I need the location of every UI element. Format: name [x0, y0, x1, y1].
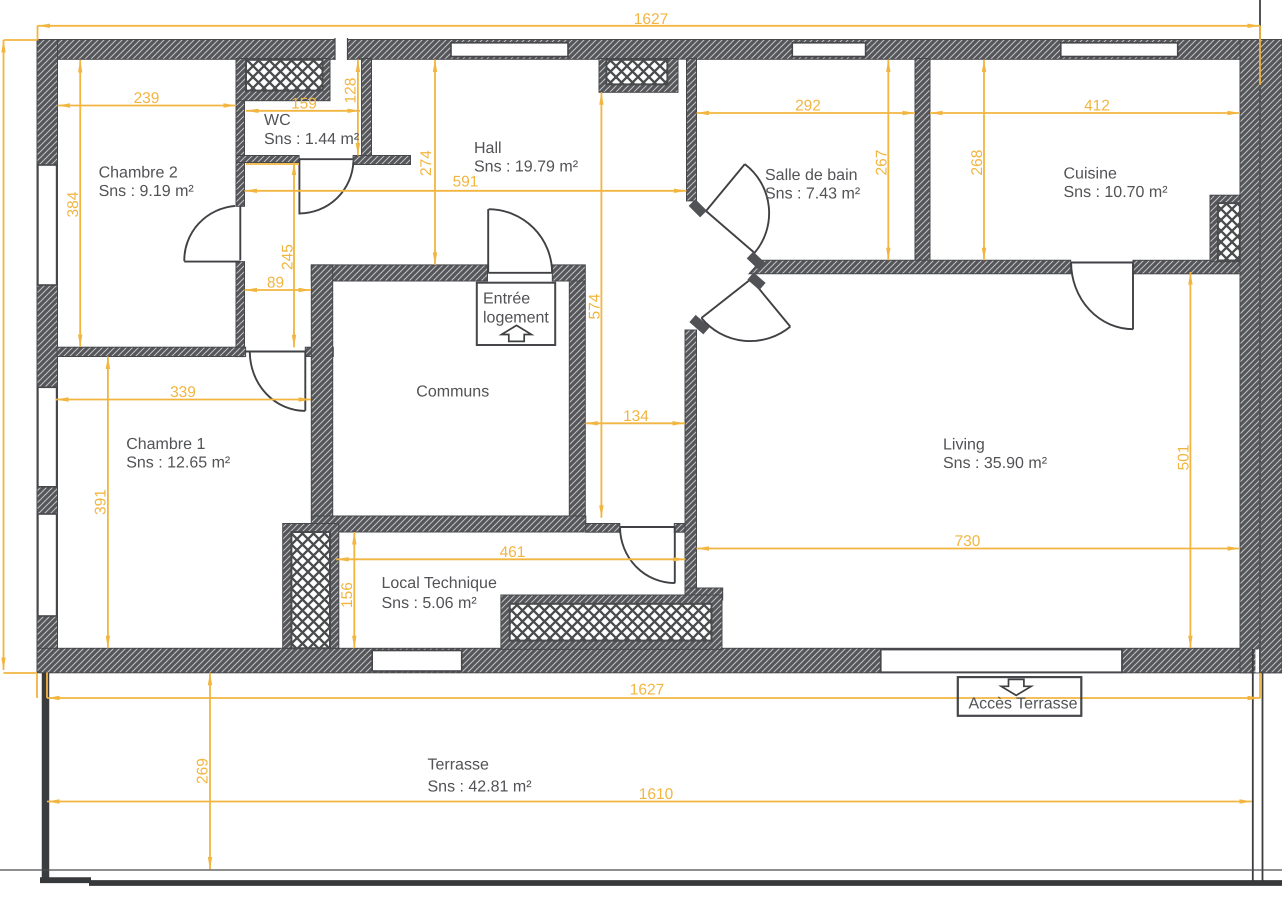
svg-text:1627: 1627 [630, 682, 664, 699]
svg-text:Cuisine: Cuisine [1064, 166, 1117, 183]
svg-text:Sns : 12.65 m²: Sns : 12.65 m² [126, 455, 231, 472]
svg-text:292: 292 [795, 98, 821, 115]
svg-text:156: 156 [339, 582, 356, 608]
svg-text:Sns : 9.19 m²: Sns : 9.19 m² [99, 183, 195, 200]
svg-text:591: 591 [453, 174, 479, 191]
svg-text:274: 274 [418, 150, 435, 176]
svg-text:Living: Living [943, 437, 985, 454]
svg-text:268: 268 [969, 150, 986, 176]
svg-text:267: 267 [874, 150, 891, 176]
svg-text:Sns : 19.79 m²: Sns : 19.79 m² [474, 159, 579, 176]
svg-text:461: 461 [500, 544, 526, 561]
svg-text:501: 501 [1176, 445, 1193, 471]
svg-text:128: 128 [343, 78, 360, 104]
svg-text:Sns : 1.44 m²: Sns : 1.44 m² [264, 131, 360, 148]
svg-text:Sns : 10.70 m²: Sns : 10.70 m² [1064, 184, 1169, 201]
svg-text:Chambre 2: Chambre 2 [99, 165, 178, 182]
svg-text:1610: 1610 [639, 786, 674, 803]
svg-text:Local Technique: Local Technique [382, 575, 497, 592]
svg-text:384: 384 [65, 191, 82, 217]
svg-text:Entrée: Entrée [483, 291, 530, 308]
svg-text:339: 339 [170, 384, 196, 401]
svg-text:391: 391 [93, 489, 110, 515]
svg-text:Salle de bain: Salle de bain [765, 167, 858, 184]
svg-text:1627: 1627 [634, 11, 668, 28]
svg-text:Communs: Communs [416, 384, 489, 401]
svg-text:Sns : 35.90 m²: Sns : 35.90 m² [943, 455, 1048, 472]
svg-text:730: 730 [955, 533, 981, 550]
svg-text:Chambre 1: Chambre 1 [126, 436, 205, 453]
svg-text:245: 245 [280, 244, 297, 270]
svg-text:89: 89 [267, 275, 284, 292]
svg-text:Sns : 42.81 m²: Sns : 42.81 m² [428, 779, 533, 796]
svg-text:Sns : 5.06 m²: Sns : 5.06 m² [382, 595, 478, 612]
svg-text:Accès Terrasse: Accès Terrasse [968, 696, 1077, 713]
svg-text:logement: logement [483, 310, 549, 327]
svg-text:412: 412 [1084, 98, 1110, 115]
svg-text:WC: WC [264, 112, 291, 129]
svg-text:Terrasse: Terrasse [428, 757, 489, 774]
svg-text:574: 574 [587, 293, 604, 319]
svg-text:269: 269 [195, 758, 212, 784]
svg-text:Hall: Hall [474, 140, 502, 157]
svg-text:Sns : 7.43 m²: Sns : 7.43 m² [765, 186, 861, 203]
svg-text:159: 159 [291, 96, 317, 113]
svg-text:134: 134 [623, 408, 649, 425]
svg-text:239: 239 [134, 90, 160, 107]
